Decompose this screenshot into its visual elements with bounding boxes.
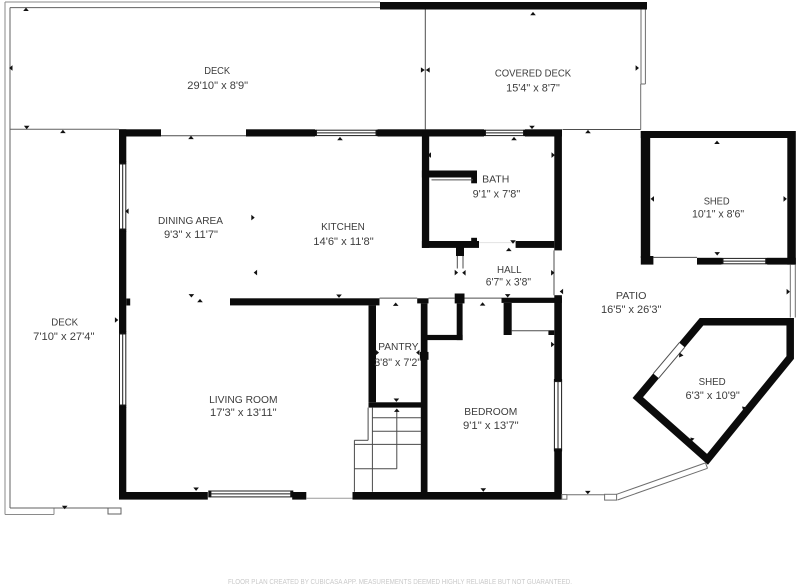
svg-text:9'1" x 7'8": 9'1" x 7'8" xyxy=(473,189,521,201)
svg-text:PATIO: PATIO xyxy=(616,290,647,302)
svg-text:FLOOR PLAN CREATED BY CUBICASA: FLOOR PLAN CREATED BY CUBICASA APP. MEAS… xyxy=(228,577,572,586)
svg-text:COVERED DECK: COVERED DECK xyxy=(495,67,571,79)
svg-text:9'3" x 11'7": 9'3" x 11'7" xyxy=(164,229,218,241)
svg-text:SHED: SHED xyxy=(704,196,730,208)
svg-text:KITCHEN: KITCHEN xyxy=(321,221,365,233)
svg-text:SHED: SHED xyxy=(699,376,726,388)
svg-text:LIVING ROOM: LIVING ROOM xyxy=(209,394,277,406)
svg-text:DINING AREA: DINING AREA xyxy=(158,215,223,227)
svg-text:6'7" x 3'8": 6'7" x 3'8" xyxy=(486,276,531,288)
svg-text:DECK: DECK xyxy=(51,317,78,329)
svg-text:HALL: HALL xyxy=(497,264,522,276)
svg-text:7'10" x 27'4": 7'10" x 27'4" xyxy=(33,331,94,343)
svg-text:3'8" x 7'2": 3'8" x 7'2" xyxy=(374,357,421,369)
svg-text:14'6" x 11'8": 14'6" x 11'8" xyxy=(313,236,373,248)
svg-text:15'4" x 8'7": 15'4" x 8'7" xyxy=(506,82,560,94)
svg-text:BATH: BATH xyxy=(482,174,509,186)
svg-text:9'1" x 13'7": 9'1" x 13'7" xyxy=(463,420,519,432)
svg-text:29'10" x 8'9": 29'10" x 8'9" xyxy=(187,80,248,92)
svg-text:BEDROOM: BEDROOM xyxy=(464,406,517,418)
svg-text:PANTRY: PANTRY xyxy=(378,341,418,353)
svg-text:DECK: DECK xyxy=(204,65,230,77)
svg-text:17'3" x 13'11": 17'3" x 13'11" xyxy=(210,407,277,419)
svg-text:16'5" x 26'3": 16'5" x 26'3" xyxy=(601,304,661,316)
svg-text:6'3" x 10'9": 6'3" x 10'9" xyxy=(686,390,740,402)
svg-text:10'1" x 8'6": 10'1" x 8'6" xyxy=(692,209,744,221)
